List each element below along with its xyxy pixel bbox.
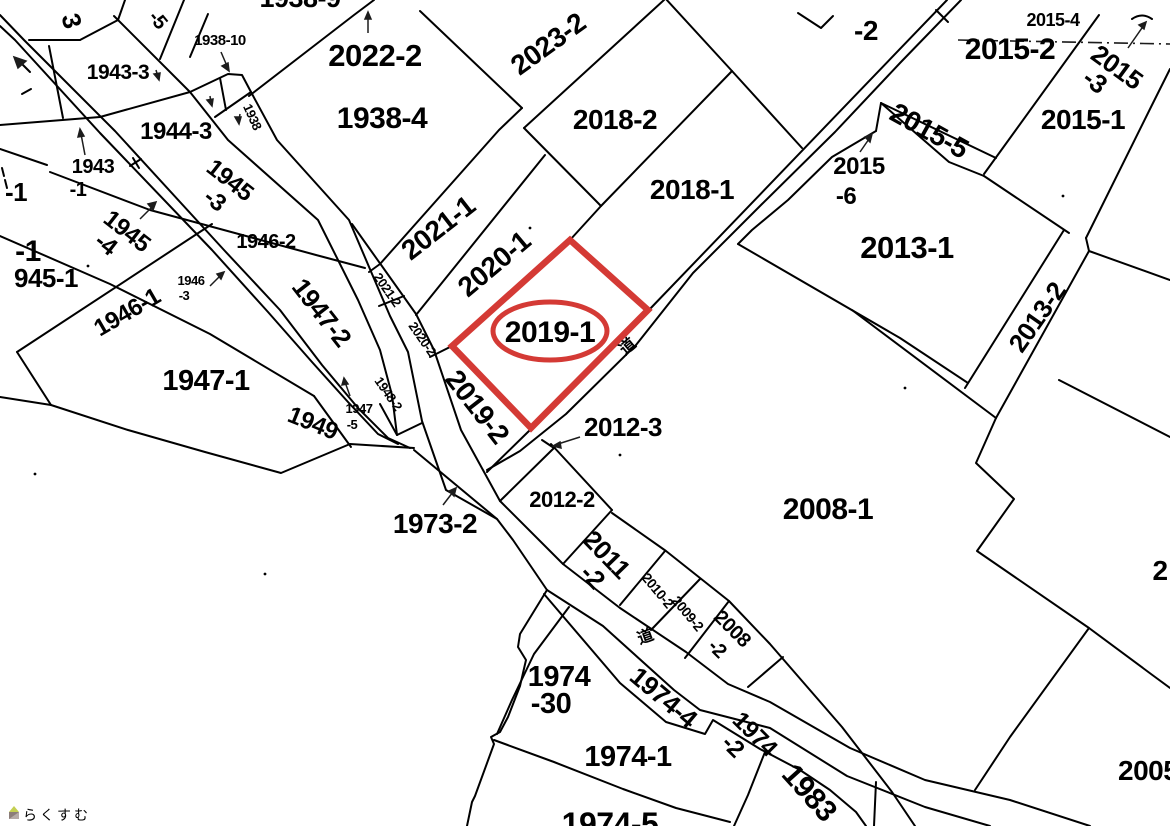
svg-text:1974-5: 1974-5: [562, 806, 659, 826]
svg-text:-30: -30: [531, 688, 571, 720]
svg-text:-2: -2: [854, 15, 878, 46]
svg-text:らくすむ: らくすむ: [23, 807, 91, 823]
svg-text:2008-1: 2008-1: [783, 493, 873, 526]
svg-text:2020-2: 2020-2: [406, 319, 440, 359]
svg-text:3: 3: [55, 10, 88, 31]
svg-text:1947-1: 1947-1: [162, 365, 250, 397]
svg-text:2015-1: 2015-1: [1041, 104, 1125, 135]
svg-text:2021-1: 2021-1: [395, 190, 480, 266]
svg-text:1947-2: 1947-2: [286, 272, 358, 352]
svg-text:2005: 2005: [1118, 755, 1170, 786]
svg-text:2015-4: 2015-4: [1026, 10, 1080, 30]
svg-text:1938-9: 1938-9: [259, 0, 341, 13]
svg-text:1974-1: 1974-1: [584, 741, 672, 773]
svg-text:2009-2: 2009-2: [669, 593, 708, 635]
svg-text:2022-2: 2022-2: [328, 38, 422, 73]
svg-text:1938-4: 1938-4: [337, 102, 428, 135]
svg-text:2015: 2015: [833, 153, 885, 180]
svg-text:2018-2: 2018-2: [573, 104, 657, 135]
svg-text:-5: -5: [144, 7, 172, 34]
svg-text:2012-2: 2012-2: [529, 487, 595, 512]
svg-text:2018-1: 2018-1: [650, 174, 734, 205]
svg-text:2019-1: 2019-1: [505, 316, 595, 349]
svg-text:-1: -1: [70, 179, 87, 201]
svg-text:1946-2: 1946-2: [236, 231, 296, 253]
svg-text:2023-2: 2023-2: [505, 7, 591, 82]
svg-text:2: 2: [1152, 555, 1167, 586]
svg-text:1947: 1947: [346, 401, 373, 416]
svg-text:1943: 1943: [72, 156, 115, 178]
svg-text:-3: -3: [179, 288, 190, 303]
svg-text:1973-2: 1973-2: [393, 508, 477, 539]
svg-text:2015-2: 2015-2: [965, 33, 1055, 66]
svg-text:2013-1: 2013-1: [860, 230, 954, 265]
svg-text:1938-10: 1938-10: [194, 32, 246, 49]
svg-text:1943-3: 1943-3: [87, 61, 149, 84]
svg-text:1948-2: 1948-2: [372, 374, 406, 414]
svg-text:945-1: 945-1: [14, 263, 78, 293]
svg-text:-5: -5: [347, 417, 358, 432]
svg-text:-2: -2: [703, 635, 731, 663]
svg-text:1946: 1946: [178, 273, 205, 288]
svg-text:2012-3: 2012-3: [584, 412, 662, 442]
svg-text:1949: 1949: [284, 401, 342, 445]
svg-text:2020-1: 2020-1: [452, 225, 536, 303]
svg-text:1944-3: 1944-3: [140, 118, 212, 145]
svg-text:-1: -1: [5, 177, 27, 207]
svg-text:1938: 1938: [240, 101, 265, 132]
svg-text:2015-5: 2015-5: [885, 97, 974, 165]
svg-text:-6: -6: [836, 183, 856, 210]
